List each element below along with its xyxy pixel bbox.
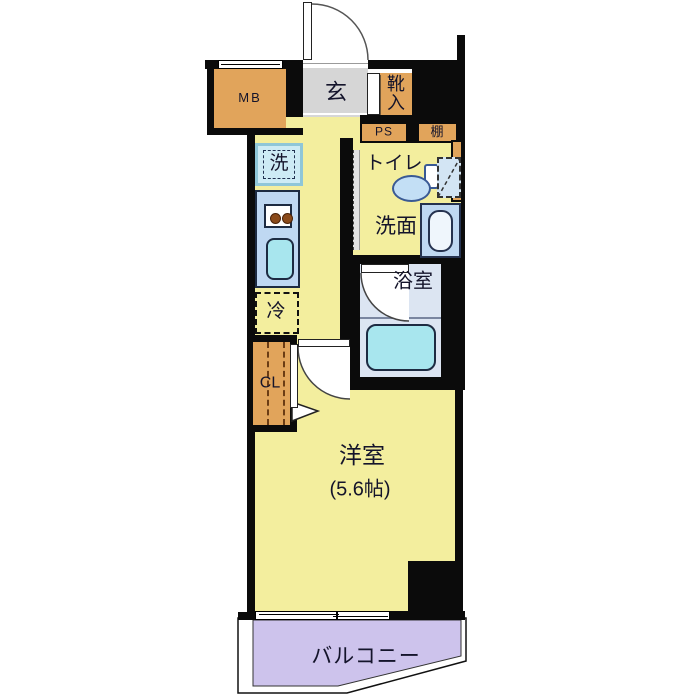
label-toilet: トイレ (365, 154, 422, 174)
label-washroom: 洗面 (375, 216, 417, 238)
shoe-cabinet-door-panel (367, 73, 380, 115)
washroom-folding-door (353, 150, 360, 250)
room-door-swing (298, 347, 350, 399)
door-layer (0, 0, 700, 700)
label-washer: 洗 (269, 154, 288, 174)
entry-door-swing (312, 4, 368, 60)
label-fridge: 冷 (266, 302, 285, 322)
overhead-shelf-diagonal (438, 158, 460, 197)
label-pipe-space: PS (375, 126, 393, 139)
closet-door-panel (290, 344, 298, 408)
label-balcony: バルコニー (311, 646, 421, 668)
label-genkan: 玄 (325, 80, 347, 103)
label-shoe-cabinet: 靴入 (386, 75, 406, 113)
label-meter-box: MB (238, 91, 262, 105)
room-door-leaf (298, 339, 350, 347)
floor-plan: MB 玄 靴入 PS 棚 トイレ 洗面 浴室 洗 冷 CL 洋室 (5.6帖) … (0, 0, 700, 700)
label-bathroom: 浴室 (393, 272, 433, 293)
label-western-room: 洋室 (339, 443, 385, 467)
label-shelf: 棚 (430, 125, 443, 139)
label-room-size: (5.6帖) (329, 480, 390, 501)
entry-door-leaf (303, 2, 312, 60)
label-closet: CL (260, 376, 280, 393)
